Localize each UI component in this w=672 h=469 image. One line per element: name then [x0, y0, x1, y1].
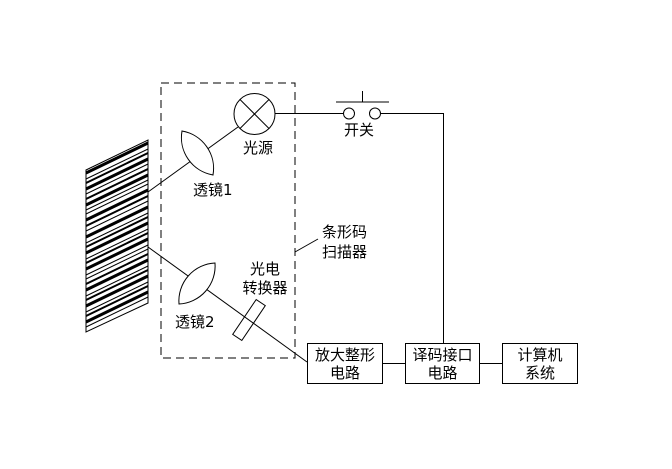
switch-label: 开关 — [344, 121, 374, 140]
light-source-shape — [234, 94, 275, 135]
switch-contact-left — [344, 108, 355, 119]
amplifier-shaping-circuit-box: 放大整形 电路 — [307, 343, 383, 384]
computer-system-box: 计算机 系统 — [502, 343, 578, 384]
lens2-shape — [179, 263, 215, 304]
diagram-canvas: 光源 透镜1 透镜2 光电 转换器 条形码 扫描器 开关 放大整形 电路 译码接… — [0, 0, 672, 469]
switch-contact-right — [370, 108, 381, 119]
wire-switch-to-decoder — [381, 114, 444, 344]
switch-symbol — [336, 91, 389, 119]
decoder-interface-circuit-box: 译码接口 电路 — [405, 343, 480, 384]
barcode-graphic — [86, 140, 148, 332]
lens1-shape — [181, 131, 213, 175]
light-source-label: 光源 — [243, 139, 273, 158]
lens1-label: 透镜1 — [193, 181, 233, 200]
scanner-callout-pointer — [295, 239, 318, 252]
lens2-label: 透镜2 — [175, 313, 215, 332]
scanner-callout-label: 条形码 扫描器 — [322, 222, 367, 262]
photo-converter-label: 光电 转换器 — [237, 260, 293, 298]
